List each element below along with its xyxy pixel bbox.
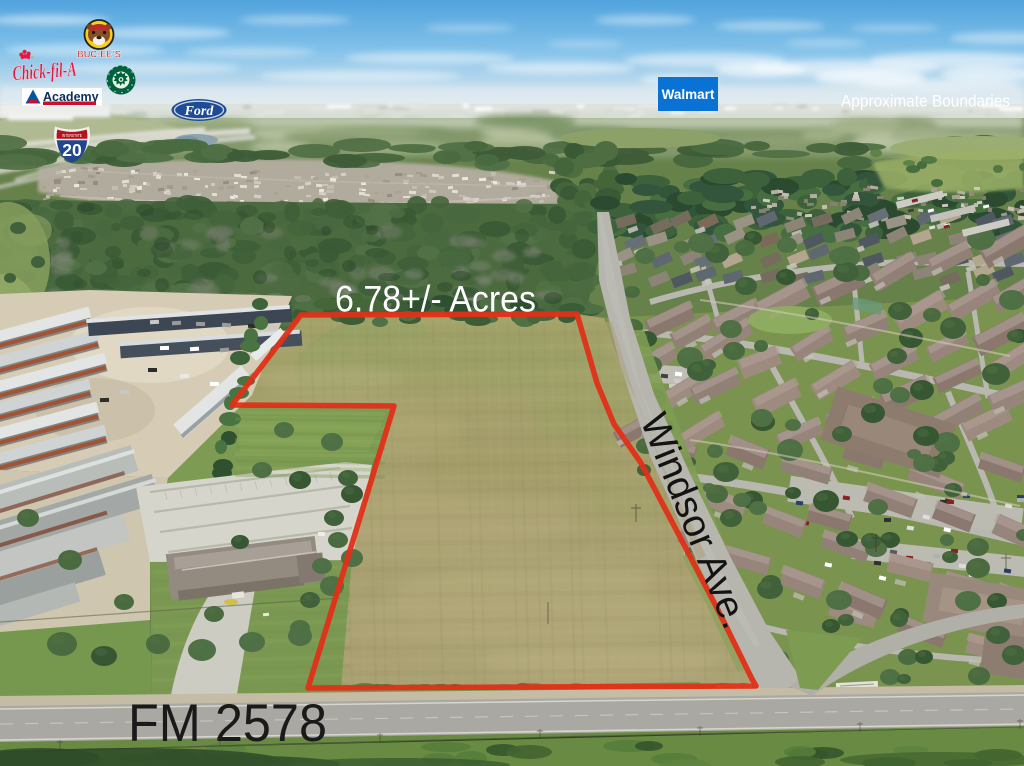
svg-text:Approximate Boundaries: Approximate Boundaries xyxy=(841,92,1010,111)
svg-text:BUC-EE'S: BUC-EE'S xyxy=(77,49,121,61)
svg-text:Walmart: Walmart xyxy=(662,87,715,102)
svg-text:6.78+/- Acres: 6.78+/- Acres xyxy=(335,279,536,320)
svg-text:Ford: Ford xyxy=(184,104,215,119)
svg-text:FM 2578: FM 2578 xyxy=(128,694,327,753)
svg-text:INTERSTATE: INTERSTATE xyxy=(62,133,82,138)
svg-text:Chick-fil-A: Chick-fil-A xyxy=(12,57,78,85)
svg-text:20: 20 xyxy=(62,140,82,160)
